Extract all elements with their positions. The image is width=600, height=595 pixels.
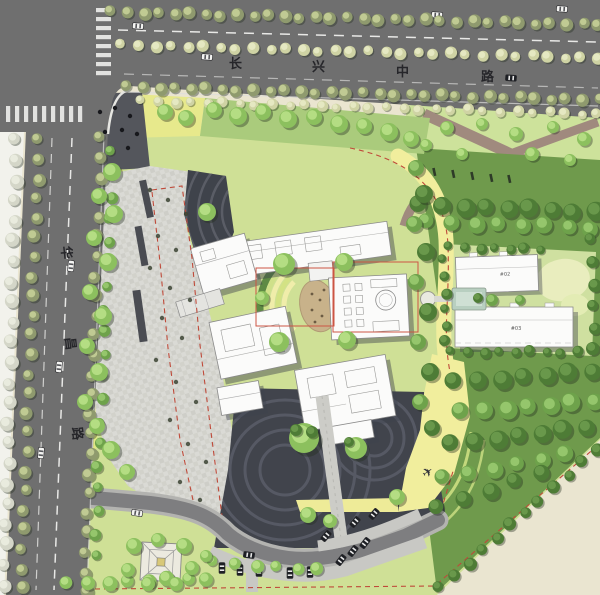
- west-road-char: 昌: [61, 336, 77, 351]
- north-road-char: 长: [229, 56, 243, 72]
- bollard-dot: [113, 106, 117, 110]
- car-icon: [243, 551, 255, 558]
- plaza-tree-dot: [184, 212, 188, 216]
- car-icon: [505, 75, 516, 82]
- plaza-tree-dot: [174, 248, 178, 252]
- car-icon: [132, 23, 143, 30]
- north-road-char: 兴: [312, 59, 325, 75]
- north-road-char: 中: [396, 64, 409, 80]
- plaza-tree-dot: [148, 266, 152, 270]
- east-block: [328, 274, 409, 340]
- site-plan-drawing: #02 #03 ✈ 长 兴 中 路 华 昌 路: [0, 0, 600, 595]
- plaza-tree-dot: [186, 442, 190, 446]
- car-icon: [55, 361, 62, 373]
- crosswalk: [6, 106, 82, 122]
- plaza-tree-dot: [204, 460, 208, 464]
- bollard-dot: [126, 146, 130, 150]
- plaza-tree-dot: [194, 400, 198, 404]
- plaza-tree-dot: [198, 498, 202, 502]
- car-icon: [287, 568, 293, 579]
- car-icon: [201, 54, 212, 61]
- plaza-tree-dot: [156, 234, 160, 238]
- bollard-dot: [128, 114, 132, 118]
- plaza-tree-dot: [148, 188, 152, 192]
- tower-02: #02: [455, 251, 538, 294]
- bollard-dot: [98, 110, 102, 114]
- site-plan-canvas: #02 #03 ✈ 长 兴 中 路 华 昌 路: [0, 0, 600, 595]
- bollard-dot: [135, 132, 139, 136]
- plaza-tree-dot: [166, 198, 170, 202]
- plaza-tree-dot: [168, 286, 172, 290]
- plaza-tree-dot: [168, 418, 172, 422]
- plaza-tree-dot: [188, 298, 192, 302]
- north-road-char: 路: [481, 69, 495, 85]
- car-icon: [556, 6, 567, 13]
- bollard-dot: [120, 128, 124, 132]
- car-icon: [67, 260, 74, 272]
- tower-03-label: #03: [511, 326, 522, 332]
- plaza-tree-dot: [160, 316, 164, 320]
- plaza-tree-dot: [174, 380, 178, 384]
- bollard-dot: [103, 130, 107, 134]
- car-icon: [219, 563, 225, 574]
- plaza-tree-dot: [154, 358, 158, 362]
- plaza-tree-dot: [178, 480, 182, 484]
- west-road-char: 华: [57, 245, 74, 260]
- car-icon: [37, 447, 44, 459]
- tower-02-label: #02: [500, 272, 511, 278]
- plaza-tree-dot: [180, 336, 184, 340]
